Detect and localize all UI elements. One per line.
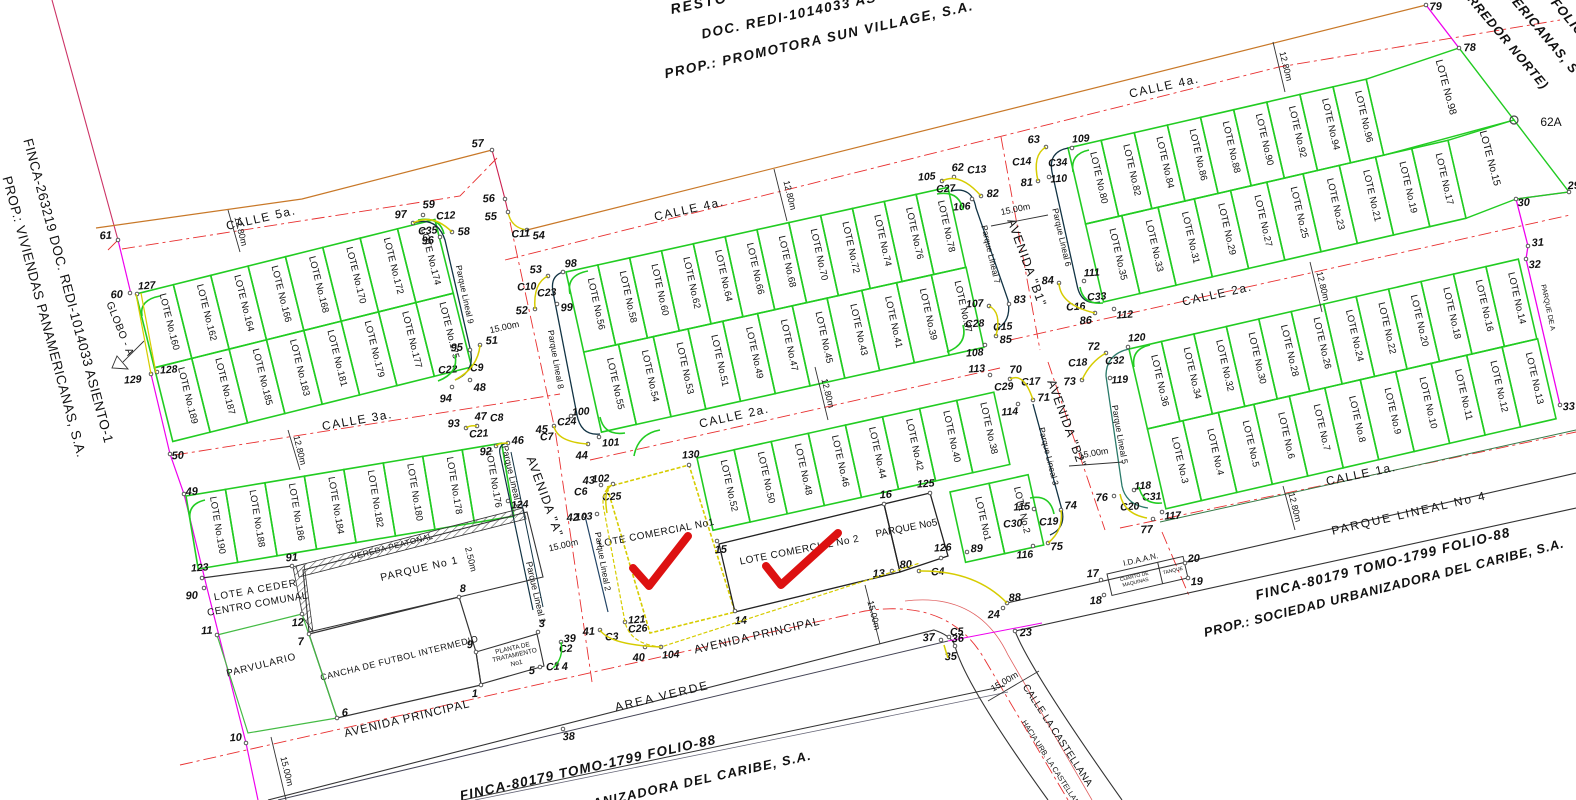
svg-text:49: 49 [184, 486, 199, 499]
svg-text:60: 60 [110, 289, 124, 302]
svg-text:81: 81 [1020, 177, 1033, 190]
svg-text:C21: C21 [469, 427, 489, 440]
svg-text:24: 24 [986, 609, 1000, 622]
svg-text:120: 120 [1128, 331, 1146, 344]
svg-text:16: 16 [879, 489, 893, 502]
svg-text:C5: C5 [950, 626, 964, 639]
svg-text:129: 129 [124, 373, 142, 386]
svg-text:101: 101 [602, 436, 620, 449]
svg-text:C15: C15 [993, 320, 1013, 333]
svg-text:61: 61 [99, 230, 112, 243]
svg-text:23: 23 [1018, 627, 1032, 640]
svg-text:119: 119 [1111, 373, 1129, 386]
svg-text:128: 128 [160, 363, 178, 376]
svg-text:C19: C19 [1039, 515, 1059, 528]
svg-text:37: 37 [922, 632, 936, 645]
svg-text:105: 105 [918, 170, 936, 183]
svg-text:C24: C24 [557, 415, 577, 428]
svg-text:114: 114 [1001, 405, 1019, 418]
svg-text:13: 13 [872, 568, 885, 581]
svg-text:40: 40 [631, 652, 646, 665]
svg-text:86: 86 [1079, 315, 1093, 328]
svg-text:54: 54 [532, 230, 545, 243]
svg-text:53: 53 [529, 264, 542, 277]
svg-text:C28: C28 [965, 317, 985, 330]
svg-text:76: 76 [1095, 492, 1109, 505]
svg-text:C12: C12 [436, 209, 456, 222]
svg-text:113: 113 [968, 362, 986, 375]
svg-text:11: 11 [201, 625, 213, 638]
svg-text:77: 77 [1140, 524, 1154, 537]
svg-text:38: 38 [562, 731, 576, 744]
svg-text:29: 29 [1566, 180, 1576, 193]
svg-text:115: 115 [1013, 500, 1031, 513]
svg-text:C32: C32 [1105, 354, 1125, 367]
svg-text:C6: C6 [574, 486, 588, 499]
svg-text:125: 125 [917, 477, 935, 490]
svg-text:126: 126 [934, 541, 952, 554]
svg-text:108: 108 [966, 346, 984, 359]
svg-text:83: 83 [1013, 294, 1026, 307]
svg-text:C18: C18 [1068, 356, 1088, 369]
svg-text:88: 88 [1008, 592, 1022, 605]
svg-text:15: 15 [714, 544, 728, 557]
svg-text:103: 103 [575, 510, 593, 523]
svg-text:12: 12 [291, 617, 304, 630]
svg-text:C11: C11 [511, 227, 530, 240]
svg-text:30: 30 [1517, 197, 1531, 210]
svg-text:98: 98 [564, 258, 578, 271]
svg-text:109: 109 [1072, 132, 1090, 145]
svg-text:46: 46 [510, 435, 525, 448]
svg-text:110: 110 [1050, 172, 1068, 185]
svg-text:1: 1 [471, 688, 478, 700]
svg-text:50: 50 [171, 450, 185, 463]
svg-text:82: 82 [986, 188, 999, 201]
svg-text:3: 3 [538, 618, 545, 630]
svg-text:51: 51 [485, 335, 498, 348]
svg-text:130: 130 [682, 448, 700, 461]
svg-text:95: 95 [450, 342, 464, 355]
svg-text:107: 107 [966, 297, 985, 310]
svg-text:62: 62 [951, 162, 964, 175]
svg-text:123: 123 [191, 561, 209, 574]
svg-text:52: 52 [515, 305, 528, 318]
svg-text:91: 91 [285, 552, 298, 565]
svg-text:93: 93 [447, 418, 460, 431]
svg-text:48: 48 [472, 382, 487, 395]
svg-text:94: 94 [439, 393, 452, 406]
svg-text:90: 90 [185, 590, 199, 603]
svg-text:89: 89 [970, 543, 984, 556]
svg-text:92: 92 [479, 446, 492, 459]
svg-text:C25: C25 [602, 490, 622, 503]
svg-text:70: 70 [1009, 364, 1023, 377]
svg-text:74: 74 [1064, 500, 1077, 513]
svg-text:4: 4 [560, 661, 568, 673]
svg-text:C29: C29 [994, 380, 1014, 393]
svg-text:C35: C35 [418, 224, 438, 237]
svg-text:C26: C26 [628, 622, 648, 635]
svg-text:C9: C9 [470, 362, 484, 375]
svg-text:85: 85 [999, 334, 1013, 347]
svg-text:127: 127 [138, 279, 157, 292]
svg-text:73: 73 [1063, 376, 1076, 389]
svg-text:C8: C8 [490, 412, 504, 425]
svg-text:C14: C14 [1012, 155, 1032, 168]
svg-text:79: 79 [1429, 1, 1443, 14]
svg-text:47: 47 [473, 411, 488, 424]
svg-text:C7: C7 [540, 430, 555, 443]
svg-text:97: 97 [394, 209, 408, 222]
svg-text:104: 104 [662, 648, 680, 661]
svg-text:33: 33 [1562, 401, 1575, 414]
svg-text:C10: C10 [517, 280, 537, 293]
svg-text:112: 112 [1116, 308, 1134, 321]
svg-text:116: 116 [1016, 548, 1034, 561]
svg-text:17: 17 [1086, 568, 1100, 581]
svg-text:19: 19 [1190, 576, 1204, 589]
svg-text:75: 75 [1050, 541, 1064, 554]
svg-text:20: 20 [1186, 553, 1201, 566]
svg-text:58: 58 [457, 226, 471, 239]
svg-text:117: 117 [1164, 509, 1183, 522]
svg-text:63: 63 [1027, 134, 1040, 147]
svg-text:C13: C13 [967, 163, 987, 176]
svg-text:84: 84 [1041, 275, 1054, 288]
svg-text:32: 32 [1528, 259, 1541, 272]
svg-text:72: 72 [1087, 341, 1100, 354]
svg-text:C30: C30 [1003, 517, 1023, 530]
svg-text:56: 56 [482, 193, 496, 206]
svg-text:57: 57 [471, 138, 485, 151]
svg-text:71: 71 [1037, 392, 1050, 405]
svg-text:78: 78 [1463, 42, 1477, 55]
svg-text:10: 10 [229, 732, 243, 745]
svg-text:59: 59 [422, 199, 436, 212]
svg-text:44: 44 [574, 450, 588, 463]
svg-text:62A: 62A [1540, 115, 1561, 129]
svg-text:111: 111 [1083, 266, 1100, 279]
svg-text:31: 31 [1531, 237, 1544, 250]
svg-text:C23: C23 [537, 286, 557, 299]
svg-text:99: 99 [560, 302, 574, 315]
svg-text:124: 124 [511, 498, 529, 511]
svg-text:55: 55 [484, 211, 498, 224]
svg-text:18: 18 [1089, 595, 1103, 608]
svg-text:C34: C34 [1048, 156, 1068, 169]
svg-text:41: 41 [581, 626, 595, 639]
